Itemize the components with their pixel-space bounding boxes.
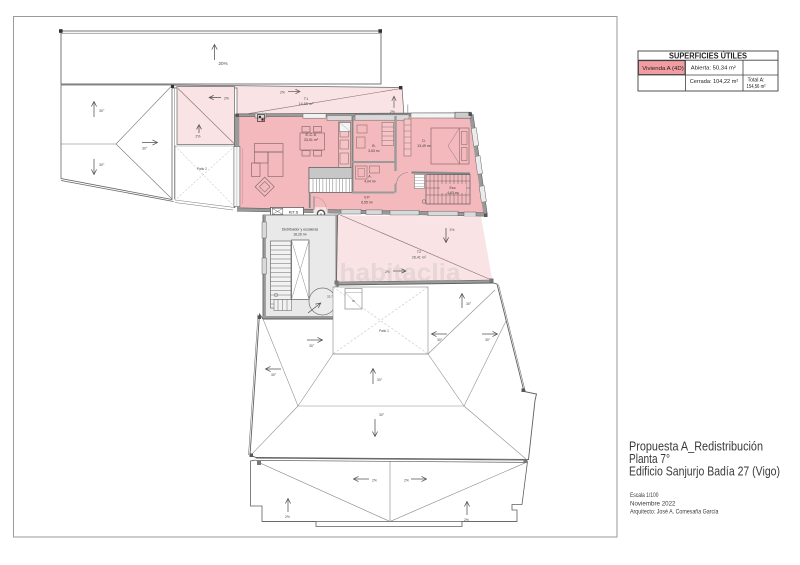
svg-text:Escala 1/100: Escala 1/100 bbox=[630, 492, 659, 499]
svg-text:4,63 m²: 4,63 m² bbox=[447, 191, 459, 195]
svg-text:T1: T1 bbox=[304, 97, 308, 101]
svg-text:154,56 m²: 154,56 m² bbox=[747, 84, 766, 90]
svg-text:Edificio Sanjurjo Badía 27 (Vi: Edificio Sanjurjo Badía 27 (Vigo) bbox=[629, 464, 780, 479]
svg-text:2%: 2% bbox=[196, 135, 201, 139]
svg-text:Cerrada: 104,22 m²: Cerrada: 104,22 m² bbox=[690, 79, 739, 85]
svg-text:SUPERFICIES ÚTILES: SUPERFICIES ÚTILES bbox=[669, 51, 748, 60]
svg-text:habitaclia: habitaclia bbox=[340, 259, 462, 287]
svg-text:2%: 2% bbox=[224, 97, 229, 101]
svg-text:2%: 2% bbox=[404, 479, 409, 483]
svg-text:Patio 1: Patio 1 bbox=[379, 329, 389, 333]
svg-text:2%: 2% bbox=[464, 518, 469, 522]
svg-text:30°: 30° bbox=[142, 147, 148, 151]
svg-text:30°: 30° bbox=[309, 344, 315, 348]
svg-text:13,49 m²: 13,49 m² bbox=[417, 144, 431, 148]
svg-text:V.P.: V.P. bbox=[364, 196, 370, 200]
svg-text:30°: 30° bbox=[437, 338, 443, 342]
svg-text:W: W bbox=[352, 299, 355, 303]
svg-text:KIT.S: KIT.S bbox=[289, 209, 299, 214]
svg-text:30°: 30° bbox=[466, 302, 472, 306]
svg-text:30°: 30° bbox=[377, 378, 383, 382]
svg-text:30°: 30° bbox=[485, 338, 491, 342]
svg-text:D.: D. bbox=[422, 139, 426, 143]
svg-text:Total A:: Total A: bbox=[748, 77, 765, 83]
svg-text:Esc.: Esc. bbox=[450, 186, 457, 190]
svg-text:2%: 2% bbox=[372, 479, 377, 483]
svg-text:Distribuidor y escaleras: Distribuidor y escaleras bbox=[282, 228, 319, 232]
svg-text:Vivienda A (4D): Vivienda A (4D) bbox=[642, 66, 684, 72]
svg-text:14,55 m²: 14,55 m² bbox=[299, 102, 315, 106]
svg-text:B.: B. bbox=[372, 144, 375, 148]
svg-text:30°: 30° bbox=[271, 373, 277, 377]
svg-text:30°: 30° bbox=[99, 109, 105, 113]
svg-text:Abierta: 50,34 m²: Abierta: 50,34 m² bbox=[691, 66, 736, 72]
svg-text:2%: 2% bbox=[285, 515, 290, 519]
svg-text:4,04 m²: 4,04 m² bbox=[364, 180, 376, 184]
svg-text:Arquitecto: José A. Comesaña G: Arquitecto: José A. Comesaña García bbox=[630, 509, 719, 516]
svg-text:33,91 m²: 33,91 m² bbox=[304, 138, 319, 142]
svg-text:3,63 m²: 3,63 m² bbox=[368, 149, 380, 153]
svg-text:Patio 2: Patio 2 bbox=[197, 167, 207, 171]
svg-text:30°: 30° bbox=[99, 163, 105, 167]
svg-text:2%: 2% bbox=[450, 228, 455, 232]
svg-text:2%: 2% bbox=[280, 91, 285, 95]
svg-text:6,55 m²: 6,55 m² bbox=[361, 201, 373, 205]
svg-text:Noviembre 2022: Noviembre 2022 bbox=[630, 501, 676, 508]
svg-text:A.: A. bbox=[368, 175, 371, 179]
svg-text:T2: T2 bbox=[417, 250, 421, 254]
svg-text:20%: 20% bbox=[219, 61, 228, 66]
svg-text:18,26 m²: 18,26 m² bbox=[293, 233, 307, 237]
svg-text:30°: 30° bbox=[379, 413, 385, 417]
